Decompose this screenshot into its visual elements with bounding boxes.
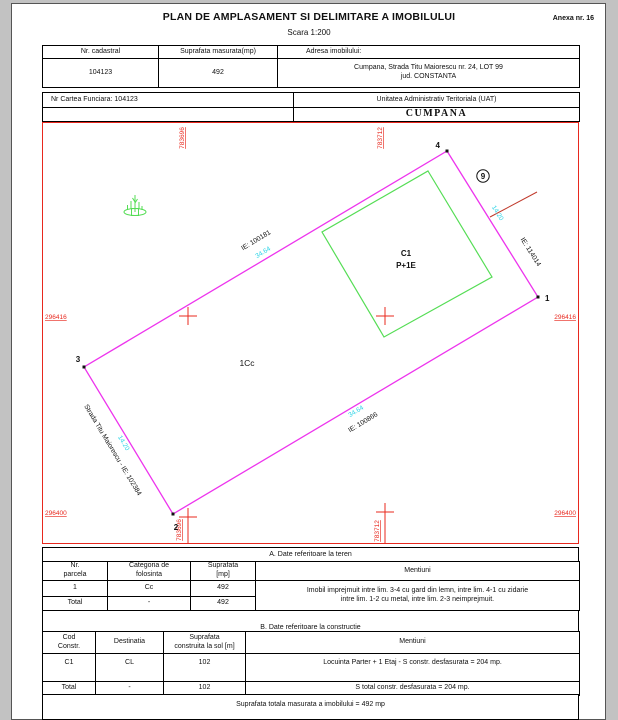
vertex-label-4: 4 (436, 141, 441, 150)
land-data-table: Nr. parcela Categoria de folosinta Supra… (42, 561, 580, 611)
vegetation-symbol (124, 195, 146, 216)
uat-name: CUMPANA (294, 108, 580, 122)
section-a-title: A. Date referitoare la teren (42, 547, 579, 562)
land-book-empty-cell (43, 108, 294, 122)
parcel-number-value: 1 (43, 581, 108, 597)
site-plan: 783696 783712 783696 783712 296416 29640… (42, 122, 579, 544)
total-measured-area-note: Suprafata totala masurata a imobilului =… (42, 694, 579, 720)
header-measured-area: Suprafata masurata(mp) (159, 46, 278, 59)
land-category-value: Cc (108, 581, 191, 597)
mentions-line-2: intre lim. 1-2 cu metal, intre lim. 2-3 … (256, 596, 579, 605)
vertex-label-2: 2 (174, 523, 179, 532)
mentions-line-1: Imobil imprejmuit intre lim. 3-4 cu gard… (256, 587, 579, 596)
table-row: C1 CL 102 Locuinta Parter + 1 Etaj - S c… (43, 654, 580, 682)
header-construction-code: Cod Constr. (43, 632, 96, 654)
header-land-mentions: Mentiuni (256, 562, 580, 581)
street-label: Strada Titu Maiorescu - IE: 102384 (82, 403, 142, 497)
land-book-table: Nr Cartea Funciara: 104123 Unitatea Admi… (42, 92, 580, 122)
header-built-area: Suprafata construita la sol [m] (164, 632, 246, 654)
grid-coordinate-labels: 783696 783712 783696 783712 296416 29640… (45, 127, 576, 542)
building-floors-label: P+1E (396, 261, 416, 270)
uat-label: Unitatea Administrativ Teritoriala (UAT) (294, 93, 580, 108)
land-use-label: 1Cc (239, 358, 255, 368)
coord-label: 296416 (45, 314, 67, 321)
land-area-value: 492 (191, 581, 256, 597)
header-cadastral-number: Nr. cadastral (43, 46, 159, 59)
land-total-label: Total (43, 597, 108, 611)
construction-data-table: Cod Constr. Destinatia Suprafata constru… (42, 631, 580, 696)
address-value: Cumpana, Strada Titu Maiorescu nr. 24, L… (278, 59, 580, 88)
building-code-label: C1 (401, 249, 412, 258)
land-mentions-value: Imobil imprejmuit intre lim. 3-4 cu gard… (256, 581, 580, 611)
parcel-boundary (84, 151, 538, 514)
coord-label: 783696 (179, 127, 186, 149)
header-line: Suprafata (191, 562, 255, 571)
vertex-label-3: 3 (76, 355, 81, 364)
header-line: [mp] (191, 571, 255, 580)
map-scale: Scara 1:200 (11, 28, 607, 37)
section-b-title: B. Date referitoare la constructie (42, 610, 579, 632)
ie-label-east: IE: 114014 (519, 237, 542, 268)
construction-mentions-value: Locuinta Parter + 1 Etaj - S constr. des… (246, 654, 580, 682)
header-land-area: Suprafata [mp] (191, 562, 256, 581)
header-destination: Destinatia (96, 632, 164, 654)
measured-area-value: 492 (159, 59, 278, 88)
land-total-category: - (108, 597, 191, 611)
header-line: Suprafata (164, 634, 245, 643)
header-line: folosinta (108, 571, 190, 580)
vertex-label-1: 1 (545, 294, 550, 303)
coord-label: 296400 (554, 510, 576, 517)
header-line: construita la sol [m] (164, 643, 245, 652)
header-parcel-number: Nr. parcela (43, 562, 108, 581)
table-row: 1 Cc 492 Imobil imprejmuit intre lim. 3-… (43, 581, 580, 597)
built-area-value: 102 (164, 654, 246, 682)
coord-label: 296416 (554, 314, 576, 321)
cadastral-info-table: Nr. cadastral Suprafata masurata(mp) Adr… (42, 45, 580, 88)
dimension-east: 14.20 (490, 204, 505, 222)
neighbor-parcel-number: 9 (481, 172, 486, 181)
address-line-1: Cumpana, Strada Titu Maiorescu nr. 24, L… (278, 64, 579, 73)
header-line: Constr. (43, 643, 95, 652)
coord-label: 296400 (45, 510, 67, 517)
dimension-south: 34.64 (347, 404, 365, 419)
dimension-north: 34.64 (254, 245, 272, 260)
address-line-2: jud. CONSTANTA (278, 73, 579, 82)
header-line: parcela (43, 571, 107, 580)
header-address: Adresa imobilului: (278, 46, 580, 59)
construction-code-value: C1 (43, 654, 96, 682)
coord-label: 783712 (374, 520, 381, 542)
dimension-west: 14.20 (116, 434, 131, 452)
header-line: Categoria de (108, 562, 190, 571)
vertex-dots (83, 150, 540, 516)
cadastral-number-value: 104123 (43, 59, 159, 88)
header-construction-mentions: Mentiuni (246, 632, 580, 654)
destination-value: CL (96, 654, 164, 682)
annex-number: Anexa nr. 16 (498, 15, 594, 22)
header-line: Nr. (43, 562, 107, 571)
land-book-number: Nr Cartea Funciara: 104123 (43, 93, 294, 108)
header-line: Cod (43, 634, 95, 643)
land-total-area: 492 (191, 597, 256, 611)
coord-label: 783712 (377, 127, 384, 149)
plan-frame (43, 123, 579, 544)
header-land-category: Categoria de folosinta (108, 562, 191, 581)
